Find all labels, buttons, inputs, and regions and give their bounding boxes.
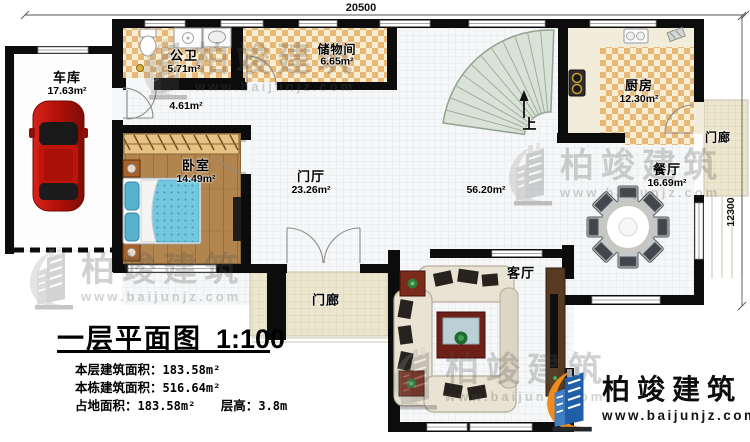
company-logo-icon: [540, 366, 594, 432]
stairs-up-label: 上: [523, 117, 538, 133]
dining-table-set: [587, 186, 669, 268]
company-logo: 柏竣建筑 www.baijunjz.com: [540, 366, 750, 432]
room-label-porch-right: 门廊: [705, 131, 731, 144]
dimension-right-value: 12300: [725, 197, 737, 226]
title-underline: [57, 350, 270, 353]
room-label-dining: 餐厅 16.69m²: [647, 163, 686, 189]
stat-total-area: 本栋建筑面积：516.64m²: [75, 377, 220, 396]
floor-plan-page: 柏竣建筑 www.baijunjz.com 柏竣建筑 www.baijunjz.…: [0, 0, 750, 442]
bed: [123, 178, 201, 244]
room-label-kitchen: 厨房 12.30m²: [619, 79, 658, 105]
coffee-table: [437, 312, 485, 358]
room-label-hallway: 4.61m²: [169, 101, 202, 113]
stat-footprint-and-height: 占地面积：183.58m² 层高：3.8m: [75, 395, 287, 414]
room-label-bathroom: 公卫 5.71m²: [167, 49, 200, 75]
room-label-storage: 储物间 6.65m²: [317, 43, 356, 68]
bedroom-tv: [233, 197, 241, 241]
company-website: www.baijunjz.com: [602, 408, 750, 423]
company-name: 柏竣建筑: [602, 376, 750, 404]
stat-floor-area: 本层建筑面积：183.58m²: [75, 359, 220, 378]
room-label-porch-bottom: 门廊: [312, 294, 340, 309]
room-label-bedroom: 卧室 14.49m²: [176, 159, 215, 185]
room-label-living: 客厅: [507, 267, 535, 282]
room-label-open-space: 56.20m²: [466, 185, 505, 197]
room-label-garage: 车库 17.63m²: [47, 71, 86, 97]
dimension-top-value: 20500: [346, 2, 377, 14]
car-top-view: [29, 101, 88, 211]
room-label-foyer: 门厅 23.26m²: [291, 170, 330, 196]
dimension-line-top: [21, 11, 749, 19]
